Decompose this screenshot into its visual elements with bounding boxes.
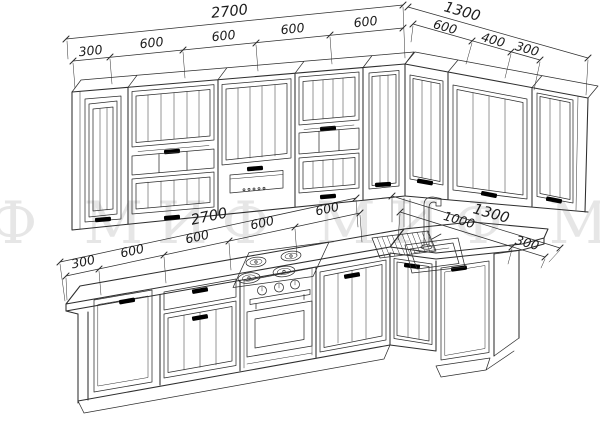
door-handle — [164, 149, 180, 155]
oven-door — [247, 301, 312, 357]
hood-cabinet-door — [222, 79, 291, 165]
burner — [245, 256, 266, 268]
dim-upper-left-segment-4-label: 600 — [353, 13, 378, 30]
upper-corner-cabinet-door — [369, 71, 399, 190]
open-shelf — [299, 128, 359, 154]
kitchen-drawing-svg: МИФ МИФ МИФ МИФ — [0, 0, 600, 424]
dim-upper-right-segment-1-label: 400 — [480, 29, 507, 50]
oven — [244, 268, 312, 368]
drawer-front — [164, 279, 236, 310]
sink-cabinet-door — [441, 261, 489, 360]
dim-upper-left-segment-3-label: 600 — [280, 20, 305, 37]
cabinet-top-faces — [405, 52, 598, 98]
dim-upper-left-total-label: 2700 — [210, 2, 248, 22]
dim-upper-right-segment-2-label: 300 — [514, 38, 541, 59]
dim-upper-left-segment-0-label: 300 — [78, 42, 103, 59]
upper-400-cabinet-door — [453, 85, 527, 199]
door-handle — [247, 166, 263, 172]
upper-cabinet-2 — [132, 85, 214, 147]
plinth — [78, 345, 390, 413]
dim-upper-left-segment-1-label: 600 — [139, 34, 164, 51]
dim-upper-left-segment-2-label: 600 — [211, 27, 236, 44]
upper-cabinet-4 — [299, 72, 359, 125]
oven-window — [255, 311, 304, 349]
dim-upper-right-segment-0-label: 600 — [432, 16, 459, 37]
upper-right-end-cabinet-door — [537, 93, 573, 203]
upper-corner-cabinet-side-door — [410, 75, 443, 185]
door-handle — [404, 263, 420, 270]
door-handle — [119, 297, 136, 304]
kitchen-technical-drawing-page: МИФ МИФ МИФ МИФ — [0, 0, 600, 424]
upper-cabinets-right-run — [405, 52, 598, 212]
door-handle — [375, 182, 391, 188]
base-end-cabinet-door — [94, 290, 152, 392]
dim-upper-left: 2700 300 600 600 600 600 — [63, 2, 406, 88]
